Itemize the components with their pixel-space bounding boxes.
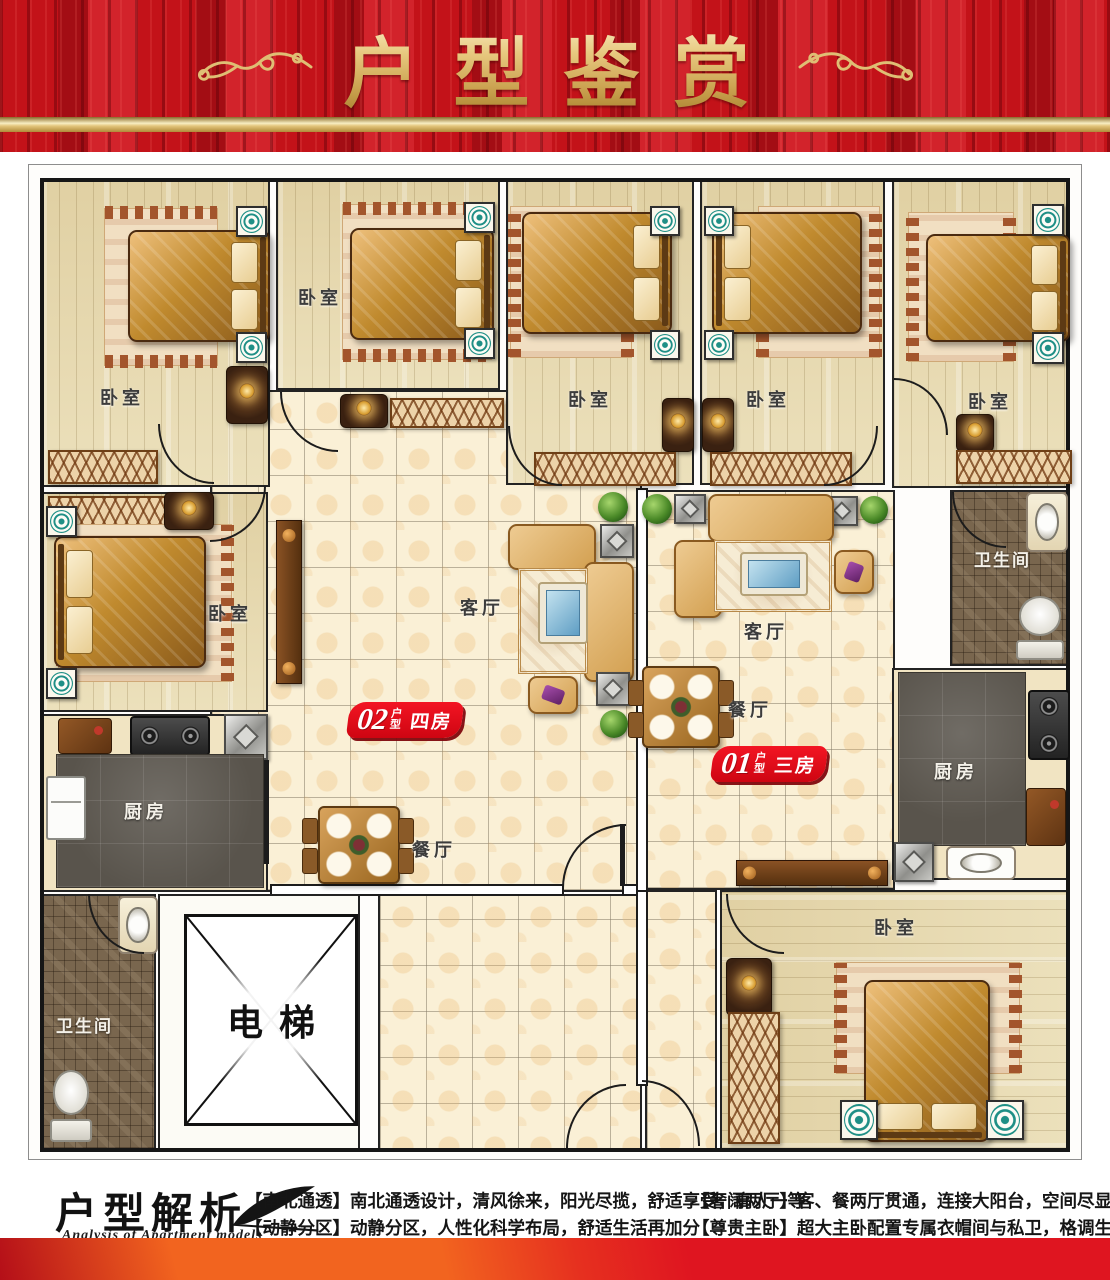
chair bbox=[302, 848, 318, 874]
coffee-table bbox=[740, 552, 808, 596]
hall-radiator bbox=[390, 398, 504, 428]
room-label-kitchen: 厨房 bbox=[934, 758, 978, 784]
sideboard-cabinet bbox=[276, 520, 302, 684]
room-label-bedroom: 卧室 bbox=[746, 386, 790, 412]
unit-badge-02: 02 户型 四房 bbox=[346, 702, 464, 738]
radiator-strip bbox=[956, 450, 1072, 484]
ceiling-speaker-icon bbox=[464, 328, 495, 359]
room-label-bedroom: 卧室 bbox=[874, 914, 918, 940]
bed bbox=[926, 234, 1070, 342]
coffee-table bbox=[538, 582, 588, 644]
swirl-flourish-icon bbox=[798, 41, 916, 93]
room-label-bathroom: 卫生间 bbox=[56, 1012, 113, 1037]
unit-rooms-label: 三房 bbox=[773, 751, 818, 778]
ceiling-speaker-icon bbox=[46, 506, 77, 537]
toilet bbox=[1016, 596, 1064, 660]
feature-text: 超大主卧配置专属衣帽间与私卫，格调生活再升级 bbox=[797, 1218, 1110, 1238]
bed bbox=[128, 230, 270, 342]
feature-line: 【奢阔两厅】客、餐两厅贯通，连接大阳台，空间尽显豪华大气 bbox=[692, 1188, 1110, 1213]
ceiling-speaker-icon bbox=[704, 330, 734, 360]
nightstand-lamp bbox=[726, 958, 772, 1016]
unit-number: 01 bbox=[720, 749, 754, 779]
chair bbox=[302, 818, 318, 844]
door-leaf bbox=[620, 824, 625, 886]
feature-text: 客、餐两厅贯通，连接大阳台，空间尽显豪华大气 bbox=[797, 1191, 1110, 1211]
bed bbox=[712, 212, 862, 334]
sofa-two-seat bbox=[508, 524, 596, 570]
ceiling-speaker-icon bbox=[986, 1100, 1024, 1140]
sofa-three-seat bbox=[708, 494, 834, 542]
poster: 户型鉴赏 bbox=[0, 0, 1110, 1280]
door-leaf bbox=[264, 760, 269, 864]
chair bbox=[628, 712, 644, 738]
ceiling-speaker-icon bbox=[704, 206, 734, 236]
ceiling-speaker-icon bbox=[236, 332, 267, 363]
tv-cabinet-lamp bbox=[164, 492, 214, 530]
room-label-dining: 餐厅 bbox=[412, 836, 456, 862]
swirl-flourish-icon bbox=[195, 41, 313, 93]
sofa-three-seat bbox=[584, 562, 634, 682]
unit-badge-01: 01 户型 三房 bbox=[710, 746, 828, 782]
bed bbox=[54, 536, 206, 668]
bed bbox=[350, 228, 494, 340]
feature-text: 动静分区，人性化科学布局，舒适生活再加分 bbox=[350, 1218, 700, 1238]
feature-line: 【尊贵主卧】超大主卧配置专属衣帽间与私卫，格调生活再升级 bbox=[692, 1215, 1110, 1240]
ceiling-speaker-icon bbox=[650, 330, 680, 360]
ottoman bbox=[528, 676, 578, 714]
nightstand-lamp bbox=[702, 398, 734, 452]
room-label-kitchen: 厨房 bbox=[124, 798, 168, 824]
bathroom-sink bbox=[1026, 492, 1068, 552]
ceiling-speaker-icon bbox=[1032, 332, 1064, 364]
ceiling-speaker-icon bbox=[650, 206, 680, 236]
cutting-board bbox=[58, 718, 112, 754]
header-banner: 户型鉴赏 bbox=[0, 0, 1110, 152]
unit-type-label: 户型 bbox=[389, 709, 405, 731]
counter-metal-unit bbox=[894, 842, 934, 882]
title-row: 户型鉴赏 bbox=[0, 12, 1110, 122]
stove bbox=[130, 716, 210, 756]
cutting-board bbox=[1026, 788, 1066, 846]
dining-table bbox=[642, 666, 720, 748]
potted-plant-icon bbox=[860, 496, 888, 524]
side-table-metal bbox=[674, 494, 706, 524]
side-table-metal bbox=[600, 524, 634, 558]
wall bbox=[636, 890, 648, 1086]
chair bbox=[628, 680, 644, 706]
room-label-dining: 餐厅 bbox=[728, 696, 772, 722]
feature-tag: 【尊贵主卧】 bbox=[692, 1218, 797, 1238]
room-label-bedroom: 卧室 bbox=[208, 600, 252, 626]
ceiling-speaker-icon bbox=[1032, 204, 1064, 236]
page-title: 户型鉴赏 bbox=[327, 12, 784, 122]
potted-plant-icon bbox=[600, 710, 628, 738]
room-label-bedroom: 卧室 bbox=[298, 284, 342, 310]
tv-cabinet bbox=[736, 860, 888, 886]
wardrobe-strip bbox=[48, 450, 158, 484]
room-label-bedroom: 卧室 bbox=[100, 384, 144, 410]
feature-tag: 【动静分区】 bbox=[245, 1218, 350, 1238]
unit-rooms-label: 四房 bbox=[409, 707, 454, 734]
elevator-box: 电梯 bbox=[184, 914, 358, 1126]
bottom-gradient-band bbox=[0, 1238, 1110, 1280]
room-label-bathroom: 卫生间 bbox=[974, 546, 1031, 571]
unit-type-label: 户型 bbox=[753, 753, 769, 775]
feature-line: 【动静分区】动静分区，人性化科学布局，舒适生活再加分 bbox=[245, 1215, 700, 1240]
side-table-metal bbox=[596, 672, 630, 706]
nightstand-lamp bbox=[662, 398, 694, 452]
feature-tag: 【奢阔两厅】 bbox=[692, 1191, 797, 1211]
feature-tag: 【南北通透】 bbox=[245, 1191, 350, 1211]
stove bbox=[1028, 690, 1070, 760]
potted-plant-icon bbox=[598, 492, 628, 522]
dining-table bbox=[318, 806, 400, 884]
nightstand-lamp bbox=[956, 414, 994, 452]
room-label-elevator: 电梯 bbox=[187, 917, 355, 1123]
unit-number: 02 bbox=[356, 705, 390, 735]
room-label-bedroom: 卧室 bbox=[968, 388, 1012, 414]
ceiling-speaker-icon bbox=[840, 1100, 878, 1140]
potted-plant-icon bbox=[642, 494, 672, 524]
wardrobe-strip bbox=[728, 1012, 780, 1144]
room-label-living: 客厅 bbox=[460, 594, 504, 620]
nightstand-lamp bbox=[226, 366, 268, 424]
fridge bbox=[46, 776, 86, 840]
room-label-living: 客厅 bbox=[744, 618, 788, 644]
hall-cabinet-lamp bbox=[340, 394, 388, 428]
ceiling-speaker-icon bbox=[464, 202, 495, 233]
bed bbox=[864, 980, 990, 1142]
room-label-bedroom: 卧室 bbox=[568, 386, 612, 412]
ceiling-speaker-icon bbox=[46, 668, 77, 699]
toilet bbox=[50, 1070, 92, 1142]
kitchen-sink bbox=[946, 846, 1016, 880]
gold-stripe bbox=[0, 117, 1110, 132]
ceiling-speaker-icon bbox=[236, 206, 267, 237]
side-sofa bbox=[834, 550, 874, 594]
